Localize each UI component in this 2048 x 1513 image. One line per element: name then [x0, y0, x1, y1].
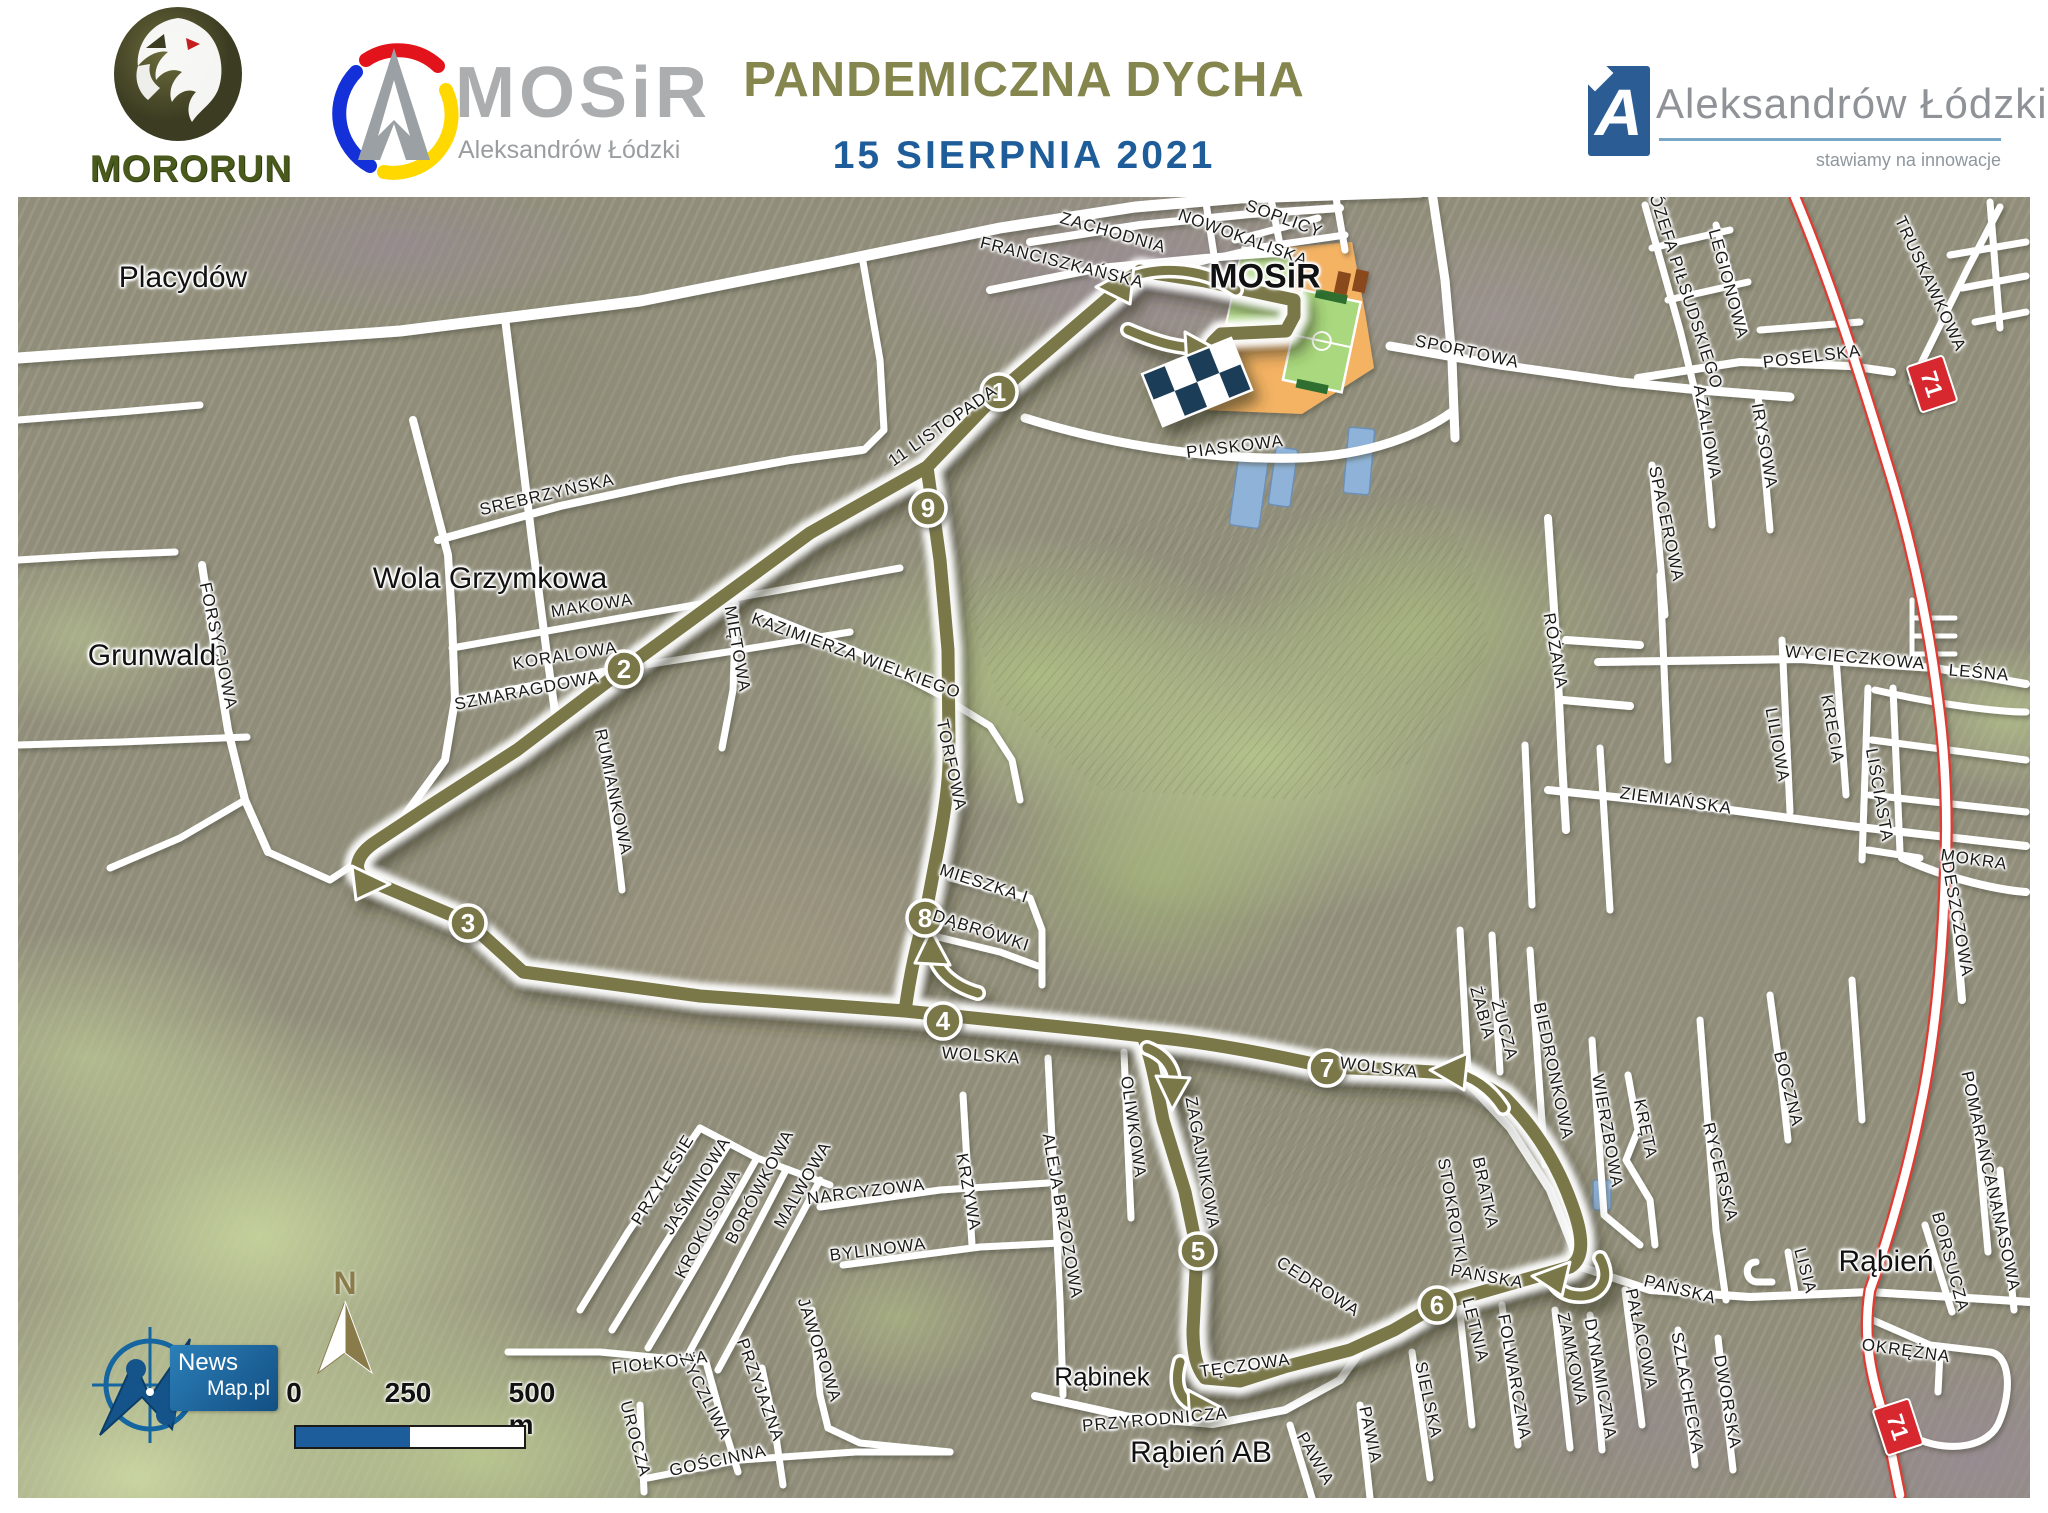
- city-tagline: stawiamy na innowacje: [1659, 150, 2001, 171]
- event-title: PANDEMICZNA DYCHA: [743, 52, 1304, 108]
- svg-text:9: 9: [921, 493, 935, 523]
- event-date: 15 SIERPNIA 2021: [833, 134, 1216, 178]
- mosir-subtitle: Aleksandrów Łódzki: [458, 136, 680, 165]
- race-map-poster: MORORUN MOSiR Aleksandrów Łódzki PANDEMI…: [0, 0, 2048, 1513]
- place-label: Rąbień AB: [1130, 1436, 1272, 1470]
- svg-text:4: 4: [936, 1006, 951, 1036]
- svg-text:3: 3: [461, 908, 475, 938]
- scale-tick-250: 250: [385, 1377, 432, 1409]
- scale-bar-segment: [296, 1427, 410, 1447]
- km-marker-3: 3: [450, 905, 486, 941]
- course-map: 123456789 ZACHODNIAFRANCISZKAŃSKASOPLICY…: [18, 197, 2030, 1498]
- mosir-wordmark: MOSiR: [455, 52, 711, 134]
- km-marker-4: 4: [925, 1003, 961, 1039]
- svg-text:6: 6: [1430, 1290, 1444, 1320]
- svg-text:8: 8: [918, 903, 932, 933]
- header: MORORUN MOSiR Aleksandrów Łódzki PANDEMI…: [0, 0, 2048, 197]
- scale-bar: 0 250 500 m: [270, 1377, 570, 1457]
- svg-text:7: 7: [1320, 1053, 1334, 1083]
- km-marker-6: 6: [1419, 1287, 1455, 1323]
- km-marker-5: 5: [1180, 1233, 1216, 1269]
- place-label: Rąbinek: [1054, 1362, 1149, 1393]
- city-logo: A: [1588, 66, 1650, 156]
- svg-text:2: 2: [617, 654, 631, 684]
- city-name: Aleksandrów Łódzki: [1656, 80, 2048, 128]
- km-marker-9: 9: [910, 490, 946, 526]
- svg-text:5: 5: [1191, 1236, 1205, 1266]
- city-rule: [1659, 138, 2001, 141]
- scale-bar-track: [294, 1425, 526, 1449]
- mororun-wordmark: MORORUN: [76, 148, 306, 190]
- forest-hatch: [960, 472, 1490, 1208]
- place-label: Grunwald: [88, 639, 216, 673]
- north-indicator: N: [300, 1265, 390, 1385]
- place-label: Placydów: [119, 261, 247, 295]
- newsmap-wordmark: News Map.pl: [170, 1345, 278, 1411]
- newsmap-line1: News: [178, 1349, 270, 1377]
- newsmap-credit: News Map.pl: [78, 1317, 288, 1457]
- newsmap-line2: Map.pl: [178, 1377, 270, 1401]
- north-label: N: [333, 1265, 356, 1302]
- city-logo-letter: A: [1595, 74, 1643, 150]
- place-label: Rąbień: [1838, 1245, 1933, 1279]
- scale-tick-0: 0: [286, 1377, 302, 1409]
- mororun-eagle-logo: [108, 4, 248, 146]
- start-finish-flag: [1142, 338, 1252, 426]
- place-label: MOSiR: [1209, 258, 1320, 297]
- place-label: Wola Grzymkowa: [373, 562, 608, 596]
- mosir-logo: [326, 20, 462, 188]
